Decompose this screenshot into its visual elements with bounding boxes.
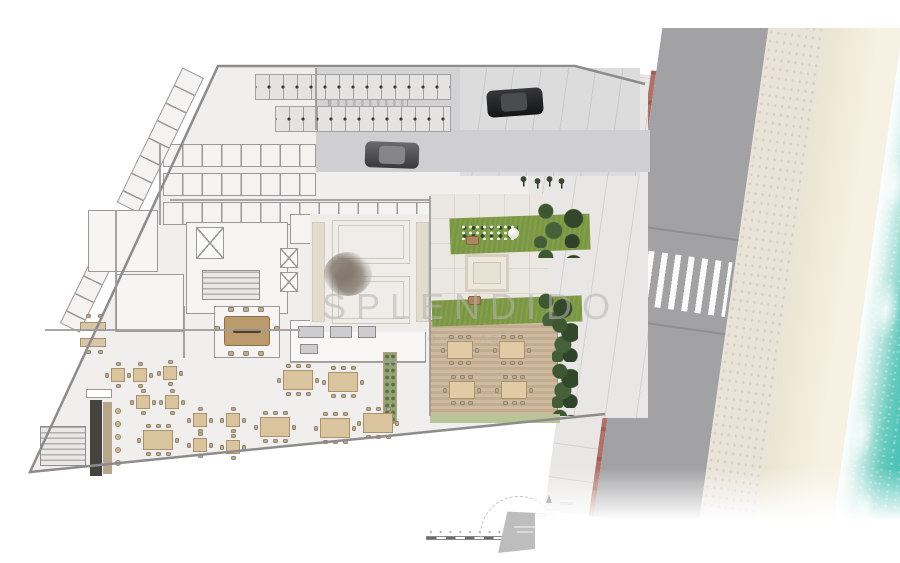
chair xyxy=(323,412,328,416)
car xyxy=(365,141,420,169)
chair xyxy=(283,411,288,415)
dining-table xyxy=(320,418,350,438)
chair xyxy=(273,439,278,443)
dining-table xyxy=(283,370,313,390)
conference-chair xyxy=(243,307,249,312)
bar-stool xyxy=(115,447,121,453)
floor-plan xyxy=(28,64,668,484)
street-tree-icon xyxy=(534,178,541,189)
dining-table xyxy=(163,366,177,380)
dining-table xyxy=(226,413,240,427)
chair xyxy=(322,380,326,385)
chair xyxy=(116,384,121,388)
chair xyxy=(357,421,361,426)
chair xyxy=(175,438,179,443)
chair xyxy=(168,360,173,364)
chair xyxy=(181,400,185,405)
chair xyxy=(170,411,175,415)
bar-stool xyxy=(115,434,121,440)
chair xyxy=(198,432,203,436)
bar-back-counter xyxy=(103,402,112,474)
chair xyxy=(127,373,131,378)
chair xyxy=(341,394,346,398)
office-chair xyxy=(86,350,91,354)
street-tree-icon xyxy=(558,178,565,189)
chair xyxy=(493,348,497,353)
chair xyxy=(527,348,531,353)
chair xyxy=(529,388,533,393)
office-chair xyxy=(98,350,103,354)
chair xyxy=(242,445,246,450)
chair xyxy=(254,425,258,430)
chair xyxy=(156,424,161,428)
chair xyxy=(475,348,479,353)
chair xyxy=(146,452,151,456)
dining-table xyxy=(165,395,179,409)
chair xyxy=(306,364,311,368)
office-desk xyxy=(80,322,106,331)
storage-lockers-row xyxy=(163,173,316,196)
conference-table xyxy=(224,316,270,346)
conference-chair xyxy=(274,326,280,331)
chair xyxy=(159,400,163,405)
bar-stool xyxy=(115,408,121,414)
chair xyxy=(451,375,456,379)
chair xyxy=(168,382,173,386)
chair xyxy=(376,407,381,411)
office-chair xyxy=(86,314,91,318)
elevator-x-glyph xyxy=(280,272,298,292)
chair xyxy=(105,373,109,378)
conference-chair xyxy=(258,307,264,312)
chair xyxy=(323,440,328,444)
conference-chair xyxy=(214,326,220,331)
car-roof xyxy=(379,146,406,165)
exit-stairs-hatch xyxy=(40,426,86,466)
kitchen-equipment xyxy=(300,344,318,354)
storage-lockers-row xyxy=(163,144,316,167)
conference-chair xyxy=(228,307,234,312)
bar-stool xyxy=(115,421,121,427)
chair xyxy=(141,389,146,393)
chair xyxy=(141,411,146,415)
dining-table xyxy=(499,341,525,359)
chair xyxy=(156,452,161,456)
chair xyxy=(231,456,236,460)
chair xyxy=(360,380,364,385)
core-stairs-hatch xyxy=(202,270,260,300)
chair xyxy=(306,392,311,396)
conference-chair xyxy=(258,351,264,356)
watermark-subtitle: O VELAS xyxy=(428,334,502,345)
chair xyxy=(366,435,371,439)
dining-table xyxy=(111,368,125,382)
chair xyxy=(187,443,191,448)
watermark-title: SPLENDIDO xyxy=(322,286,620,328)
chair xyxy=(460,375,465,379)
chair xyxy=(286,392,291,396)
chair xyxy=(166,424,171,428)
chair xyxy=(277,378,281,383)
chair xyxy=(501,361,506,365)
chair xyxy=(157,371,161,376)
conference-chair xyxy=(243,351,249,356)
chair xyxy=(386,407,391,411)
car xyxy=(486,87,544,118)
dining-table xyxy=(226,440,240,454)
chair xyxy=(146,424,151,428)
chair xyxy=(286,364,291,368)
site-plan-rendering: SPLENDIDO O VELAS xyxy=(0,0,900,563)
chair xyxy=(198,454,203,458)
chair xyxy=(518,335,523,339)
chair xyxy=(149,373,153,378)
chair xyxy=(510,361,515,365)
chair xyxy=(220,418,224,423)
chair xyxy=(130,400,134,405)
chair xyxy=(315,378,319,383)
chair xyxy=(170,389,175,393)
chair xyxy=(503,375,508,379)
chair xyxy=(341,366,346,370)
motorcycle-parking-row xyxy=(255,74,451,100)
chair xyxy=(351,366,356,370)
chair xyxy=(283,439,288,443)
bottom-fade xyxy=(535,468,900,563)
street-tree-icon xyxy=(520,176,527,187)
dining-table xyxy=(449,381,475,399)
deck-hedge xyxy=(552,316,578,416)
chair xyxy=(386,435,391,439)
bar-stool xyxy=(115,460,121,466)
chair xyxy=(512,401,517,405)
chair xyxy=(292,425,296,430)
chair xyxy=(263,439,268,443)
chair xyxy=(137,438,141,443)
chair xyxy=(518,361,523,365)
chair xyxy=(187,418,191,423)
chair xyxy=(231,434,236,438)
chair xyxy=(443,388,447,393)
chair xyxy=(449,361,454,365)
chair xyxy=(441,348,445,353)
chair xyxy=(451,401,456,405)
dining-table xyxy=(193,413,207,427)
chair xyxy=(468,401,473,405)
chair xyxy=(512,375,517,379)
chair xyxy=(296,364,301,368)
deck-grass-edge xyxy=(430,414,560,423)
chair xyxy=(242,418,246,423)
dining-table xyxy=(363,413,393,433)
chair xyxy=(477,388,481,393)
office-chair xyxy=(98,314,103,318)
car-roof xyxy=(500,92,527,112)
chair xyxy=(458,361,463,365)
street-tree-icon xyxy=(546,176,553,187)
bar-counter xyxy=(90,400,102,476)
chair xyxy=(179,371,183,376)
chair xyxy=(198,407,203,411)
conference-chair xyxy=(228,351,234,356)
chair xyxy=(376,435,381,439)
chair xyxy=(138,384,143,388)
chair xyxy=(520,375,525,379)
office-desk xyxy=(80,338,106,347)
chair xyxy=(520,401,525,405)
chair xyxy=(231,407,236,411)
chair xyxy=(231,429,236,433)
decor-sphere xyxy=(508,228,519,239)
motorcycle-parking-row xyxy=(275,106,451,132)
chair xyxy=(366,407,371,411)
dining-table xyxy=(328,372,358,392)
chair xyxy=(343,440,348,444)
chair xyxy=(510,335,515,339)
chair xyxy=(503,401,508,405)
top-margin xyxy=(0,0,900,28)
chair xyxy=(352,426,356,431)
chair xyxy=(460,401,465,405)
dining-table xyxy=(501,381,527,399)
chair xyxy=(331,394,336,398)
chair xyxy=(263,411,268,415)
dining-table xyxy=(143,430,173,450)
back-of-house-room xyxy=(116,274,184,332)
back-of-house-room xyxy=(88,210,158,272)
dining-table xyxy=(260,417,290,437)
lounge-chair xyxy=(466,236,479,245)
chair xyxy=(220,445,224,450)
chair xyxy=(273,411,278,415)
chair xyxy=(333,412,338,416)
chair xyxy=(314,426,318,431)
dining-table xyxy=(136,395,150,409)
dining-table xyxy=(133,368,147,382)
chair xyxy=(209,418,213,423)
dining-table xyxy=(193,438,207,452)
elevator-x-glyph xyxy=(280,248,298,268)
kitchen-equipment xyxy=(298,326,324,338)
chair xyxy=(395,421,399,426)
chair xyxy=(343,412,348,416)
chair xyxy=(209,443,213,448)
chair xyxy=(166,452,171,456)
chair xyxy=(116,362,121,366)
chair xyxy=(351,394,356,398)
chair xyxy=(331,366,336,370)
chair xyxy=(296,392,301,396)
chair xyxy=(333,440,338,444)
chair xyxy=(152,400,156,405)
shrub-cluster xyxy=(526,202,592,258)
chair xyxy=(495,388,499,393)
chair xyxy=(466,361,471,365)
chair xyxy=(138,362,143,366)
chair xyxy=(468,375,473,379)
bar-signage xyxy=(86,389,112,398)
elevator-x-glyph xyxy=(196,227,224,259)
